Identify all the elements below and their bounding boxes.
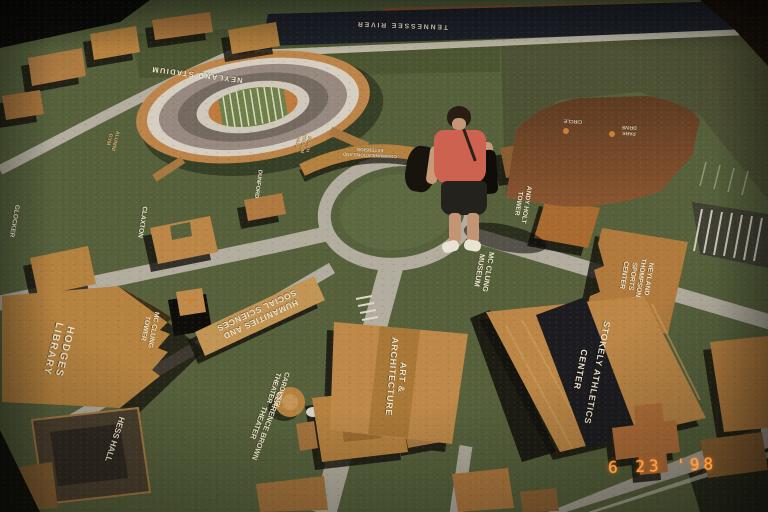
label-line: PARK xyxy=(621,130,636,137)
label-south-stadium: SOUTH STADIUM HALL xyxy=(293,131,313,154)
person-leg-left xyxy=(449,213,461,243)
date-stamp: 6 23 '98 xyxy=(608,454,718,477)
label-neyland-thompson: NEYLAND THOMPSON SPORTS CENTER xyxy=(617,255,655,299)
label-line: DRIVE xyxy=(621,124,636,131)
label-circle: CIRCLE xyxy=(564,118,583,125)
person-shorts xyxy=(441,181,487,215)
label-park-drive: PARK DRIVE xyxy=(621,124,637,137)
person-shirt xyxy=(434,130,486,184)
person-face xyxy=(452,118,466,130)
photo-of-campus-model: TENNESSEE RIVER NEYLAND STADIUM ALUMNI G… xyxy=(0,0,768,512)
